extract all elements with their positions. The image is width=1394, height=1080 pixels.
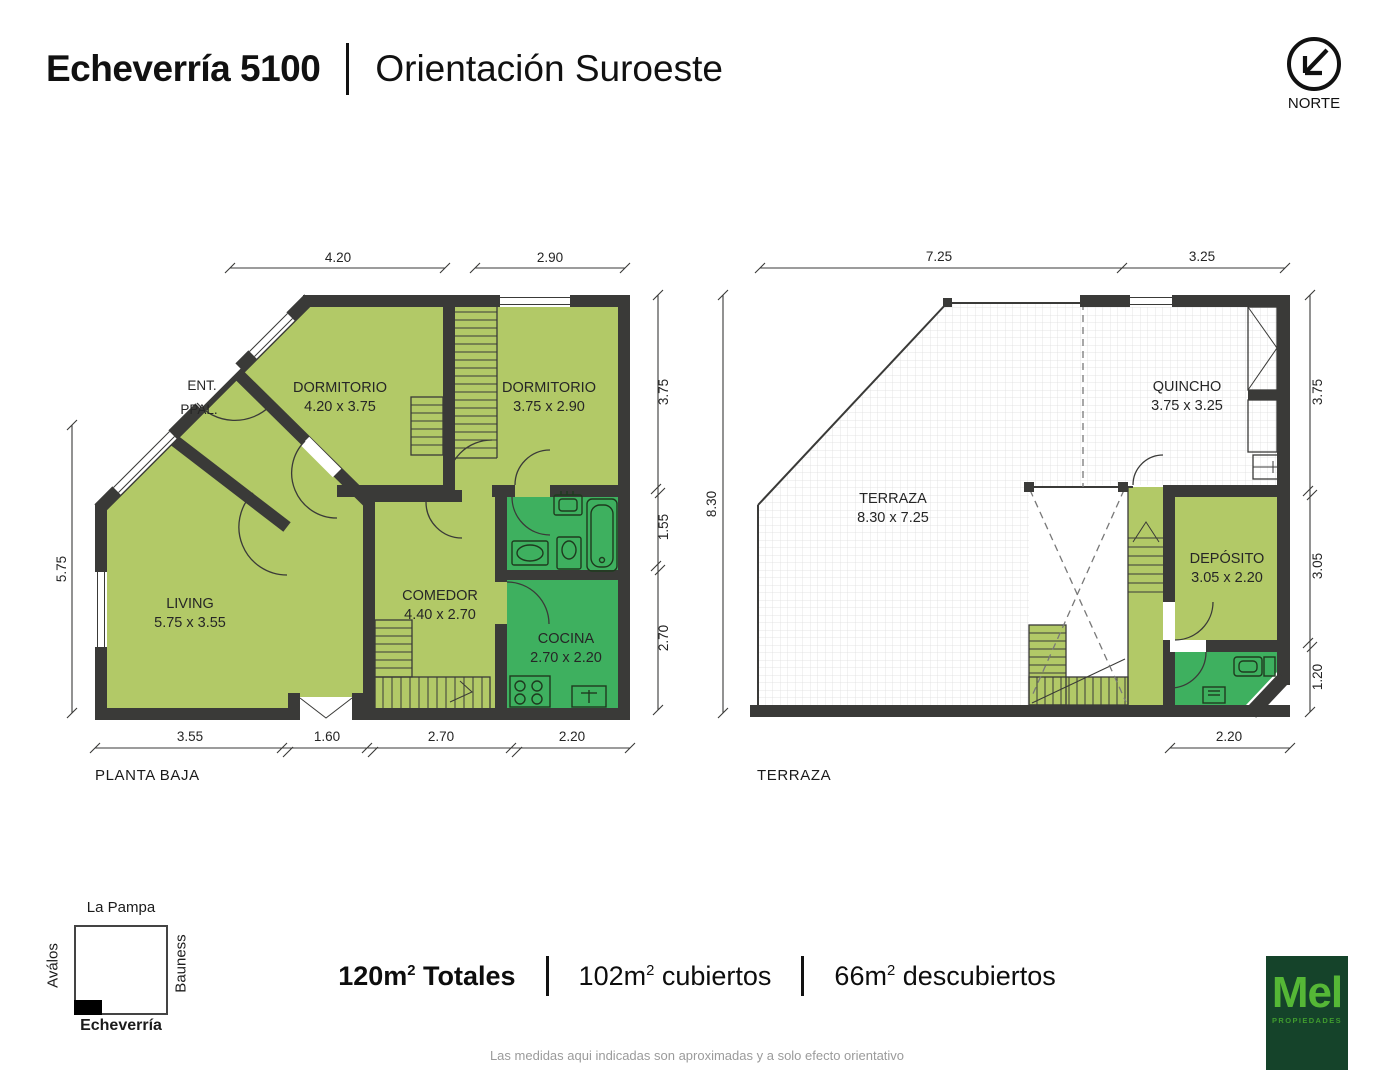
room-size-living: 5.75 x 3.55 (154, 615, 226, 631)
room-label-dormitorio1: DORMITORIO (293, 380, 387, 396)
dim-label: 4.20 (325, 250, 351, 265)
room-bano-floor (507, 497, 620, 570)
property-location-marker (74, 1000, 102, 1015)
room-label-terraza: TERRAZA (859, 491, 927, 507)
floorplan-page: Echeverría 5100 Orientación Suroeste NOR… (0, 0, 1394, 1080)
post (943, 298, 952, 307)
bottom-niche (288, 693, 364, 720)
wall-living-comedor (363, 490, 375, 710)
wall-comedor-top (363, 490, 462, 502)
room-size-deposito: 3.05 x 2.20 (1191, 570, 1263, 586)
dim-label: 3.25 (1189, 249, 1215, 264)
southwest-arrow-icon (1305, 50, 1327, 73)
room-label-dormitorio2: DORMITORIO (502, 380, 596, 396)
room-size-terraza: 8.30 x 7.25 (857, 510, 929, 526)
dim-label: 7.25 (926, 249, 952, 264)
dim-label: 1.20 (1310, 664, 1325, 690)
mel-propiedades-logo: Mel PROPIEDADES (1266, 956, 1348, 1070)
title-separator (346, 43, 349, 95)
stairwell (1029, 487, 1163, 705)
post (1118, 482, 1128, 492)
dim-label: 2.70 (656, 625, 671, 651)
dim-label: 2.70 (428, 729, 454, 744)
logo-subtitle: PROPIEDADES (1272, 1016, 1342, 1025)
summary-separator (546, 956, 549, 996)
room-size-dormitorio2: 3.75 x 2.90 (513, 399, 585, 415)
room-label-entrada-2: PPAL. (180, 402, 217, 417)
logo-name: Mel (1272, 970, 1342, 1016)
post (1024, 482, 1034, 492)
street-echeverria: Echeverría (66, 1017, 176, 1035)
terraza-floorplan: TERRAZA 8.30 x 7.25 QUINCHO 3.75 x 3.25 … (695, 240, 1360, 805)
wall-dorm1-stairs (443, 295, 455, 490)
summary-separator (801, 956, 804, 996)
area-summary: 120m2 Totales 102m2 cubiertos 66m2 descu… (0, 956, 1394, 996)
room-size-cocina: 2.70 x 2.20 (530, 650, 602, 666)
covered-area: 102m2 cubiertos (579, 961, 772, 992)
room-label-comedor: COMEDOR (402, 588, 478, 604)
plan-label-planta-baja: PLANTA BAJA (95, 767, 200, 784)
room-label-living: LIVING (166, 596, 214, 612)
dim-label: 3.05 (1310, 553, 1325, 579)
room-size-quincho: 3.75 x 3.25 (1151, 398, 1223, 414)
compass-label: NORTE (1288, 95, 1340, 112)
room-label-deposito: DEPÓSITO (1190, 550, 1265, 567)
stair-landing (1128, 487, 1163, 705)
address-title: Echeverría 5100 (46, 48, 320, 90)
dim-label: 2.20 (559, 729, 585, 744)
orientation-title: Orientación Suroeste (375, 48, 723, 90)
north-compass: NORTE (1272, 26, 1364, 118)
plan-label-terraza: TERRAZA (757, 767, 831, 784)
dim-label: 1.60 (314, 729, 340, 744)
dim-label: 1.55 (656, 514, 671, 540)
dim-label: 2.90 (537, 250, 563, 265)
room-label-cocina: COCINA (538, 631, 595, 647)
street-la-pampa: La Pampa (74, 899, 168, 916)
room-label-entrada-1: ENT. (187, 378, 216, 393)
dim-label: 3.75 (1310, 379, 1325, 405)
room-size-dormitorio1: 4.20 x 3.75 (304, 399, 376, 415)
dim-label: 3.75 (656, 379, 671, 405)
uncovered-area: 66m2 descubiertos (834, 961, 1055, 992)
disclaimer-text: Las medidas aqui indicadas son aproximad… (0, 1048, 1394, 1063)
page-title: Echeverría 5100 Orientación Suroeste (46, 40, 723, 98)
room-size-comedor: 4.40 x 2.70 (404, 607, 476, 623)
room-label-quincho: QUINCHO (1153, 379, 1221, 395)
dim-label: 3.55 (177, 729, 203, 744)
planta-baja-floorplan: ENT. PPAL. DORMITORIO 4.20 x 3.75 DORMIT… (55, 240, 700, 805)
total-area: 120m2 Totales (338, 961, 515, 992)
dim-label: 8.30 (704, 491, 719, 517)
dim-label: 5.75 (55, 556, 69, 582)
dim-label: 2.20 (1216, 729, 1242, 744)
room-deposito-floor (1175, 497, 1277, 640)
